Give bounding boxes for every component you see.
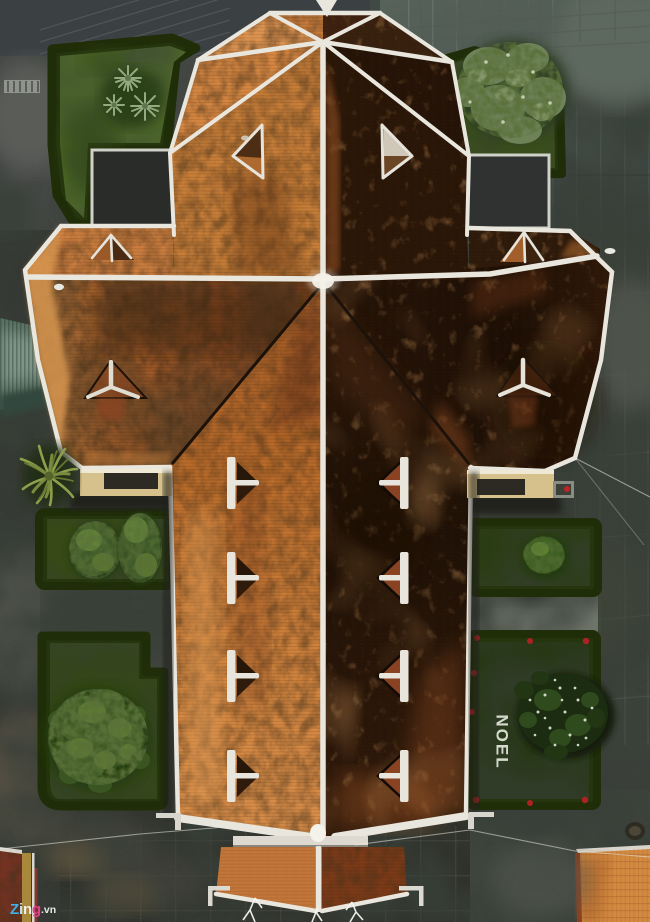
svg-text:Z: Z [10, 901, 19, 918]
svg-text:.vn: .vn [41, 904, 56, 916]
svg-text:n: n [23, 901, 32, 918]
svg-text:g: g [32, 901, 41, 918]
svg-text:NOEL: NOEL [493, 714, 512, 769]
